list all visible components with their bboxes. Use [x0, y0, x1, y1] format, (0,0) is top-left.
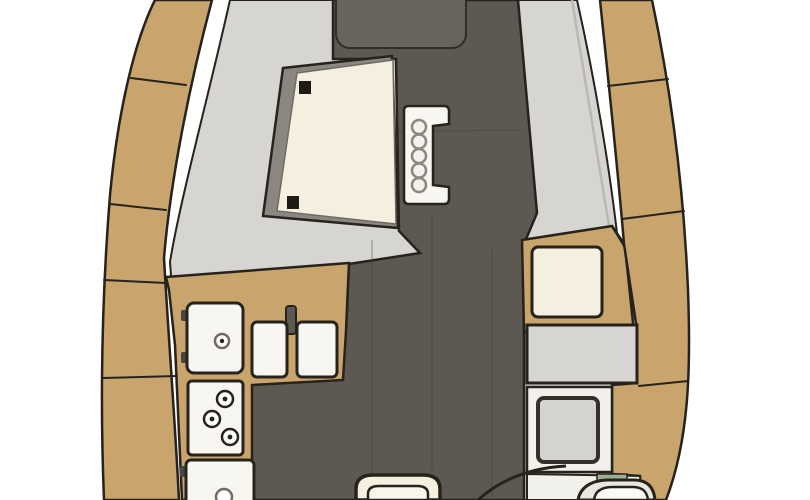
saloon-table	[263, 56, 398, 228]
step-treads	[412, 120, 426, 192]
forward-berth-cushion	[368, 486, 428, 500]
forward-berth	[356, 475, 440, 500]
companionway-cockpit-shape	[336, 0, 466, 48]
chart-table	[527, 325, 637, 383]
shower-tray	[538, 398, 598, 462]
drain-dot	[220, 339, 224, 343]
sink-left-bowl	[252, 322, 287, 377]
table-hinge-aft	[299, 81, 311, 94]
nav-seat	[532, 247, 602, 317]
oven-dial	[216, 489, 232, 500]
table-hinge-fwd	[287, 196, 299, 209]
galley-appliances	[180, 303, 254, 500]
yacht-floor-plan	[0, 0, 810, 500]
sink-right-bowl	[297, 322, 337, 377]
floor-plan-canvas	[0, 0, 810, 500]
head-sink-inner	[594, 487, 648, 500]
